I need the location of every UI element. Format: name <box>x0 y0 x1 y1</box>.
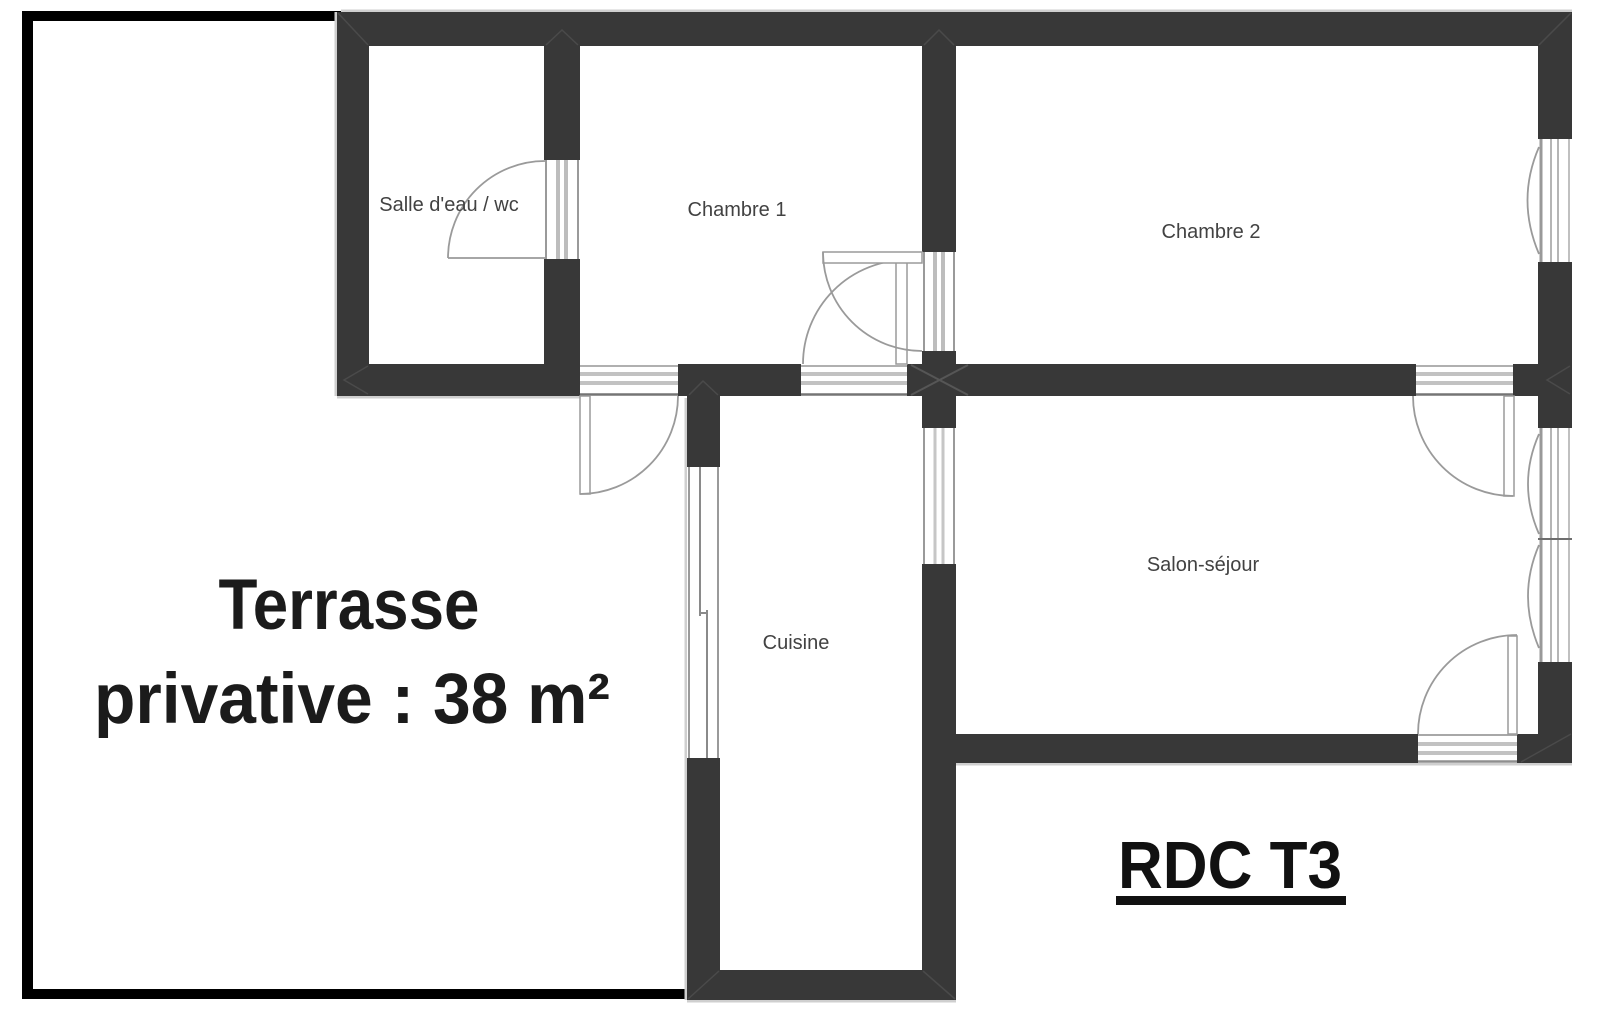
svg-text:Terrasse: Terrasse <box>219 566 480 645</box>
svg-text:Chambre 1: Chambre 1 <box>688 199 787 221</box>
svg-text:Salon-séjour: Salon-séjour <box>1147 554 1260 576</box>
svg-text:Salle d'eau / wc: Salle d'eau / wc <box>379 194 518 216</box>
svg-text:RDC T3: RDC T3 <box>1118 828 1342 903</box>
svg-text:Cuisine: Cuisine <box>763 632 830 654</box>
svg-text:privative : 38 m²: privative : 38 m² <box>94 660 610 739</box>
svg-text:Chambre 2: Chambre 2 <box>1162 221 1261 243</box>
